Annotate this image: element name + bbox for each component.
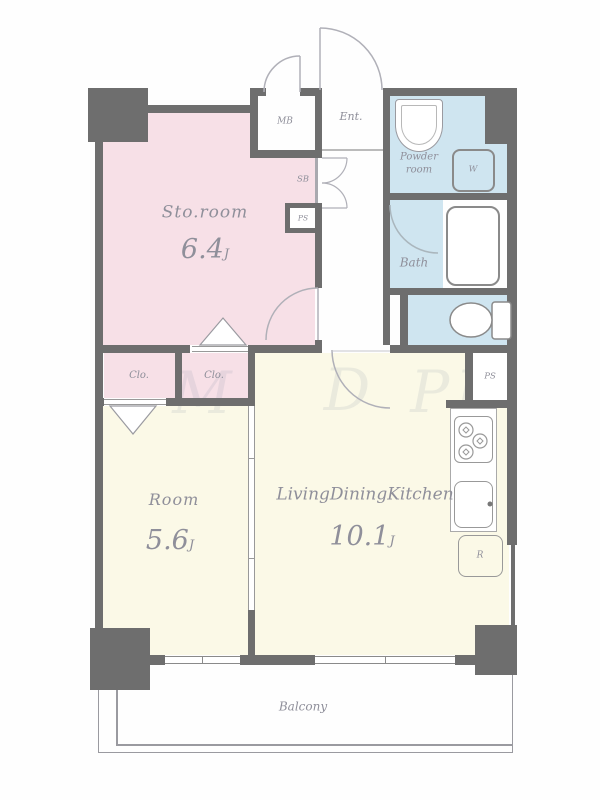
bath-label: Bath xyxy=(400,256,429,271)
kitchen-sink xyxy=(454,481,493,528)
wall-room-ldk-top xyxy=(248,353,255,406)
ps-right-label: PS xyxy=(484,372,496,383)
refrigerator-label: R xyxy=(477,550,484,561)
toilet-floor xyxy=(408,295,509,345)
ldk-name: LivingDiningKitchen xyxy=(276,484,453,505)
wall-left xyxy=(95,140,103,630)
wall-mid-b xyxy=(248,345,322,353)
storage-room-area: 6.4J xyxy=(181,233,229,267)
wall-closet-bottom-a xyxy=(95,398,104,406)
wall-right xyxy=(507,142,517,545)
mb-door-arc xyxy=(264,56,300,92)
washer-label: W xyxy=(469,165,478,176)
bedroom-area: 5.6J xyxy=(146,524,194,558)
wall-bath-bottom xyxy=(383,288,517,295)
sb-label: SB xyxy=(297,175,309,186)
wall-closet-bottom-b xyxy=(166,398,255,406)
ldk-window-mullion xyxy=(385,656,386,664)
powder-room-label: Powderroom xyxy=(400,152,438,177)
sliding-partition-break-1 xyxy=(248,458,255,459)
wall-toilet-left xyxy=(400,295,408,345)
bathtub xyxy=(446,206,500,286)
wall-top-storage xyxy=(145,105,253,113)
sliding-partition xyxy=(248,406,255,610)
bedroom-window-mullion xyxy=(202,656,203,664)
ps-small-label: PS xyxy=(298,213,308,222)
bath-floor xyxy=(390,200,443,288)
wall-mid-c xyxy=(390,345,517,353)
closet-right-door-track xyxy=(192,346,248,352)
wall-mb-bottom xyxy=(250,150,317,158)
pillar-bottom-right xyxy=(475,625,517,675)
entrance-label: Ent. xyxy=(339,110,362,124)
stove xyxy=(454,416,493,463)
wall-closet-divider xyxy=(175,353,182,398)
wall-mb-left xyxy=(250,88,258,158)
storage-room-floor xyxy=(103,113,250,345)
wall-hall-left-mid xyxy=(315,205,322,288)
mb-label: MB xyxy=(277,116,293,127)
wall-bottom-a xyxy=(95,655,165,665)
wall-top-powder xyxy=(383,88,485,96)
pillar-top-right xyxy=(485,88,517,144)
balcony-inner-line-bottom xyxy=(116,744,513,746)
shoebox-door-arc-top xyxy=(322,158,347,183)
sliding-partition-break-2 xyxy=(248,558,255,559)
wall-hall-left-upper xyxy=(315,88,322,158)
wall-hall-right xyxy=(383,96,390,345)
wall-ps-small-bottom xyxy=(285,228,322,233)
wall-right-thin xyxy=(511,545,515,625)
bedroom-name: Room xyxy=(149,490,199,510)
closet-left-label: Clo. xyxy=(129,370,149,383)
shoe-box-front-line xyxy=(315,158,318,205)
entrance-door-arc xyxy=(320,28,382,90)
wall-bottom-c xyxy=(455,655,509,665)
wall-mid-a xyxy=(95,345,190,353)
wall-bottom-b xyxy=(240,655,315,665)
ldk-area: 10.1J xyxy=(329,520,394,554)
closet-right-label: Clo. xyxy=(204,370,224,383)
watermark-fragment: D xyxy=(324,356,377,424)
wall-ps-left xyxy=(465,345,473,408)
powder-sink-bowl xyxy=(401,105,437,145)
pillar-top-left xyxy=(88,88,148,142)
shoebox-door-arc-bottom xyxy=(322,183,347,208)
storage-room-name: Sto.room xyxy=(162,202,249,223)
entrance-step-line xyxy=(322,149,383,151)
wall-powder-bottom xyxy=(383,193,517,200)
floor-plan: M D PL xyxy=(0,0,600,800)
balcony-label: Balcony xyxy=(279,700,327,715)
closet-left-door-track xyxy=(104,399,166,405)
